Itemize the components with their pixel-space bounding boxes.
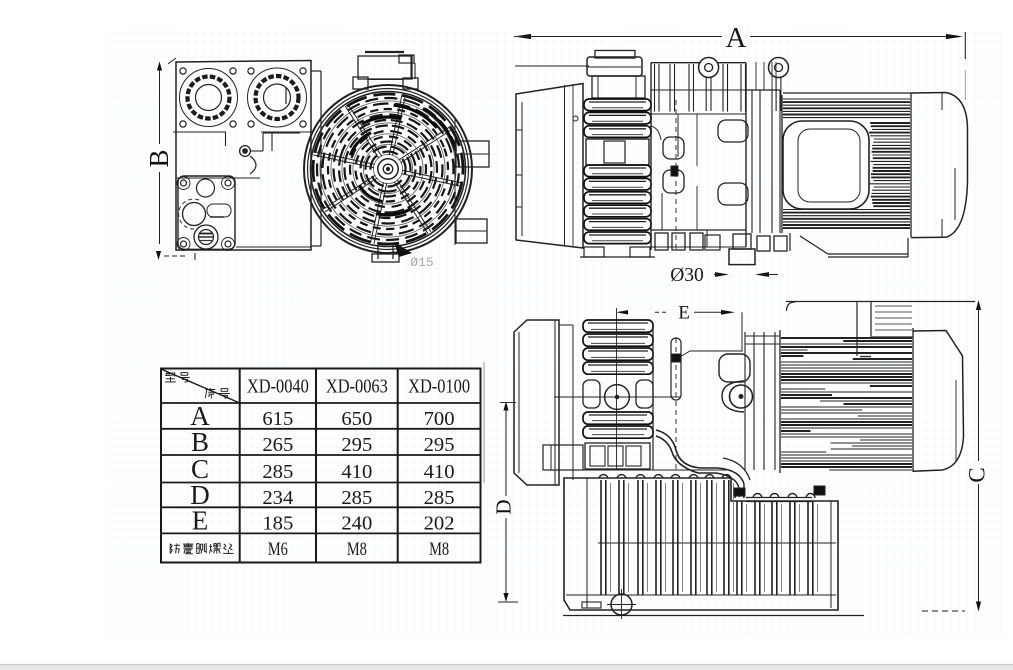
svg-text:285: 285: [262, 462, 293, 483]
svg-text:295: 295: [341, 435, 372, 456]
svg-text:202: 202: [424, 513, 455, 534]
svg-text:285: 285: [341, 488, 372, 509]
svg-text:XD-0040: XD-0040: [247, 377, 309, 398]
svg-text:615: 615: [262, 409, 293, 430]
svg-text:700: 700: [424, 409, 455, 430]
svg-text:E: E: [678, 303, 690, 324]
svg-text:234: 234: [262, 488, 293, 509]
svg-text:Ø15: Ø15: [410, 255, 433, 270]
svg-text:Ø30: Ø30: [670, 265, 704, 286]
svg-text:M8: M8: [429, 539, 449, 560]
svg-text:285: 285: [424, 488, 455, 509]
svg-text:XD-0100: XD-0100: [408, 377, 470, 398]
svg-text:M6: M6: [268, 539, 288, 560]
svg-text:D: D: [492, 499, 516, 514]
svg-text:XD-0063: XD-0063: [326, 377, 388, 398]
svg-text:B: B: [191, 427, 209, 457]
svg-text:185: 185: [262, 513, 293, 534]
svg-text:295: 295: [424, 435, 455, 456]
svg-text:410: 410: [424, 462, 455, 483]
svg-text:A: A: [726, 22, 747, 54]
svg-text:M8: M8: [347, 539, 367, 560]
svg-text:650: 650: [341, 409, 372, 430]
svg-text:C: C: [965, 467, 990, 482]
svg-text:B: B: [144, 149, 174, 167]
svg-text:E: E: [192, 505, 209, 535]
svg-text:410: 410: [341, 462, 372, 483]
svg-text:265: 265: [262, 435, 293, 456]
svg-text:240: 240: [341, 513, 372, 534]
